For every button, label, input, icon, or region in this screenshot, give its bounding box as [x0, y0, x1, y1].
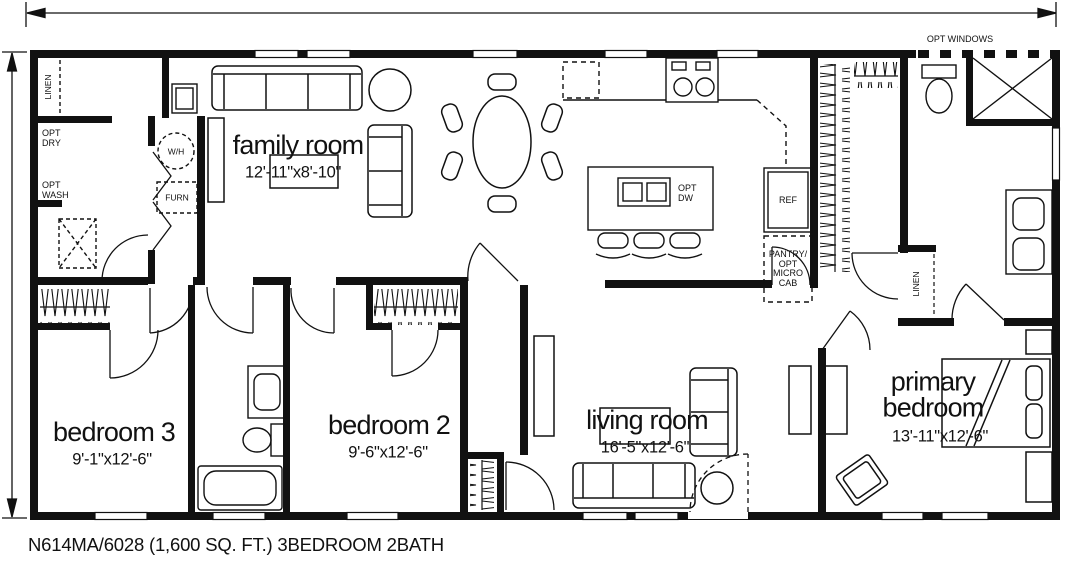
dining-chair	[540, 102, 565, 134]
plan-title: N614MA/6028 (1,600 SQ. FT.) 3BEDROOM 2BA…	[28, 534, 444, 556]
nightstand	[1026, 452, 1052, 502]
optional-windows	[916, 50, 1052, 58]
living-room-label: living room	[586, 408, 708, 434]
bedroom-3-dims: 9'-1"x12'-6"	[72, 451, 152, 468]
door-primary-bedroom	[822, 311, 870, 350]
height-dimension-arrow	[2, 52, 27, 518]
bathtub-icon	[198, 466, 282, 510]
accent-chair	[835, 454, 888, 506]
optional-shower-icon	[59, 219, 96, 268]
family-room-dims: 12'-11"x8'-10"	[245, 164, 341, 181]
linen-utility-label: LINEN	[43, 74, 53, 99]
bedroom-3-label: bedroom 3	[53, 420, 175, 446]
bar-stools	[596, 233, 702, 258]
dining-chair	[488, 196, 516, 212]
entry-opening	[688, 511, 748, 521]
refrigerator-label: REF	[779, 196, 797, 206]
dining-chair	[488, 74, 516, 90]
bedroom-3-closet-hangers	[40, 289, 110, 325]
dining-chair	[440, 150, 465, 182]
primary-bedroom-label: primary bedroom	[853, 369, 1013, 420]
toilet-icon	[922, 65, 956, 113]
dining-chair	[440, 102, 465, 134]
dining-set	[440, 74, 565, 212]
bedroom-2-closet-hangers	[374, 289, 458, 325]
bedroom-2-dims: 9'-6"x12'-6"	[348, 444, 428, 461]
sofa	[573, 463, 695, 508]
linen-bath-label: LINEN	[911, 271, 921, 296]
sofa	[212, 66, 362, 110]
opt-windows-label: OPT WINDOWS	[927, 35, 993, 45]
media-console	[534, 336, 554, 436]
round-side-table	[701, 472, 733, 504]
floorplan-page: family room 12'-11"x8'-10" bedroom 3 9'-…	[0, 0, 1088, 572]
primary-bedroom-dims: 13'-11"x12'-6"	[892, 428, 988, 445]
nightstand	[1026, 330, 1052, 354]
opt-dishwasher-label: OPT DW	[678, 183, 697, 203]
hall-bath	[198, 366, 286, 510]
family-room-label: family room	[233, 133, 364, 159]
double-vanity-icon	[1006, 190, 1052, 274]
door-hall-column	[468, 243, 518, 281]
walkin-closet-hangers	[820, 62, 898, 272]
door-hall-bath	[207, 287, 253, 333]
door-coat-closet	[506, 462, 554, 510]
round-table	[369, 69, 411, 111]
dresser	[825, 366, 847, 434]
door-utility	[102, 235, 148, 281]
door-bedroom-3-closet	[110, 330, 158, 378]
coat-closet-hangers	[470, 460, 494, 510]
door-primary-bath	[952, 284, 1004, 320]
vanity-sink-icon	[248, 366, 286, 418]
water-heater-label: W/H	[168, 148, 185, 157]
bedroom-2-label: bedroom 2	[328, 413, 450, 439]
primary-bath	[922, 58, 1052, 274]
counter-dashed	[757, 100, 786, 168]
console-table	[789, 366, 811, 434]
door-bedroom-2	[291, 288, 334, 333]
optional-cabinet	[563, 62, 599, 98]
doors	[102, 152, 1004, 512]
dining-table	[473, 96, 531, 188]
loveseat	[368, 125, 412, 217]
floorplan-drawing	[0, 0, 1088, 572]
opt-wash-label: OPT WASH	[42, 180, 69, 200]
pantry-label: PANTRY/ OPT MICRO CAB	[769, 250, 807, 288]
utility-area	[59, 60, 197, 268]
toilet-icon	[243, 424, 284, 456]
door-bedroom-2-closet	[392, 330, 438, 376]
shower-icon	[973, 58, 1052, 119]
tv-console	[208, 118, 224, 202]
door-bedroom-3	[150, 288, 193, 333]
range-icon	[666, 58, 718, 102]
door-suite-closet	[852, 253, 898, 299]
opt-dry-label: OPT DRY	[42, 128, 61, 148]
sink-icon	[618, 178, 670, 206]
utility-cabinet	[172, 84, 197, 113]
width-dimension-arrow	[26, 2, 1056, 27]
furnace-label: FURN	[165, 194, 189, 203]
living-room-dims: 16'-5"x12'-6"	[601, 439, 689, 456]
dining-chair	[540, 150, 565, 182]
